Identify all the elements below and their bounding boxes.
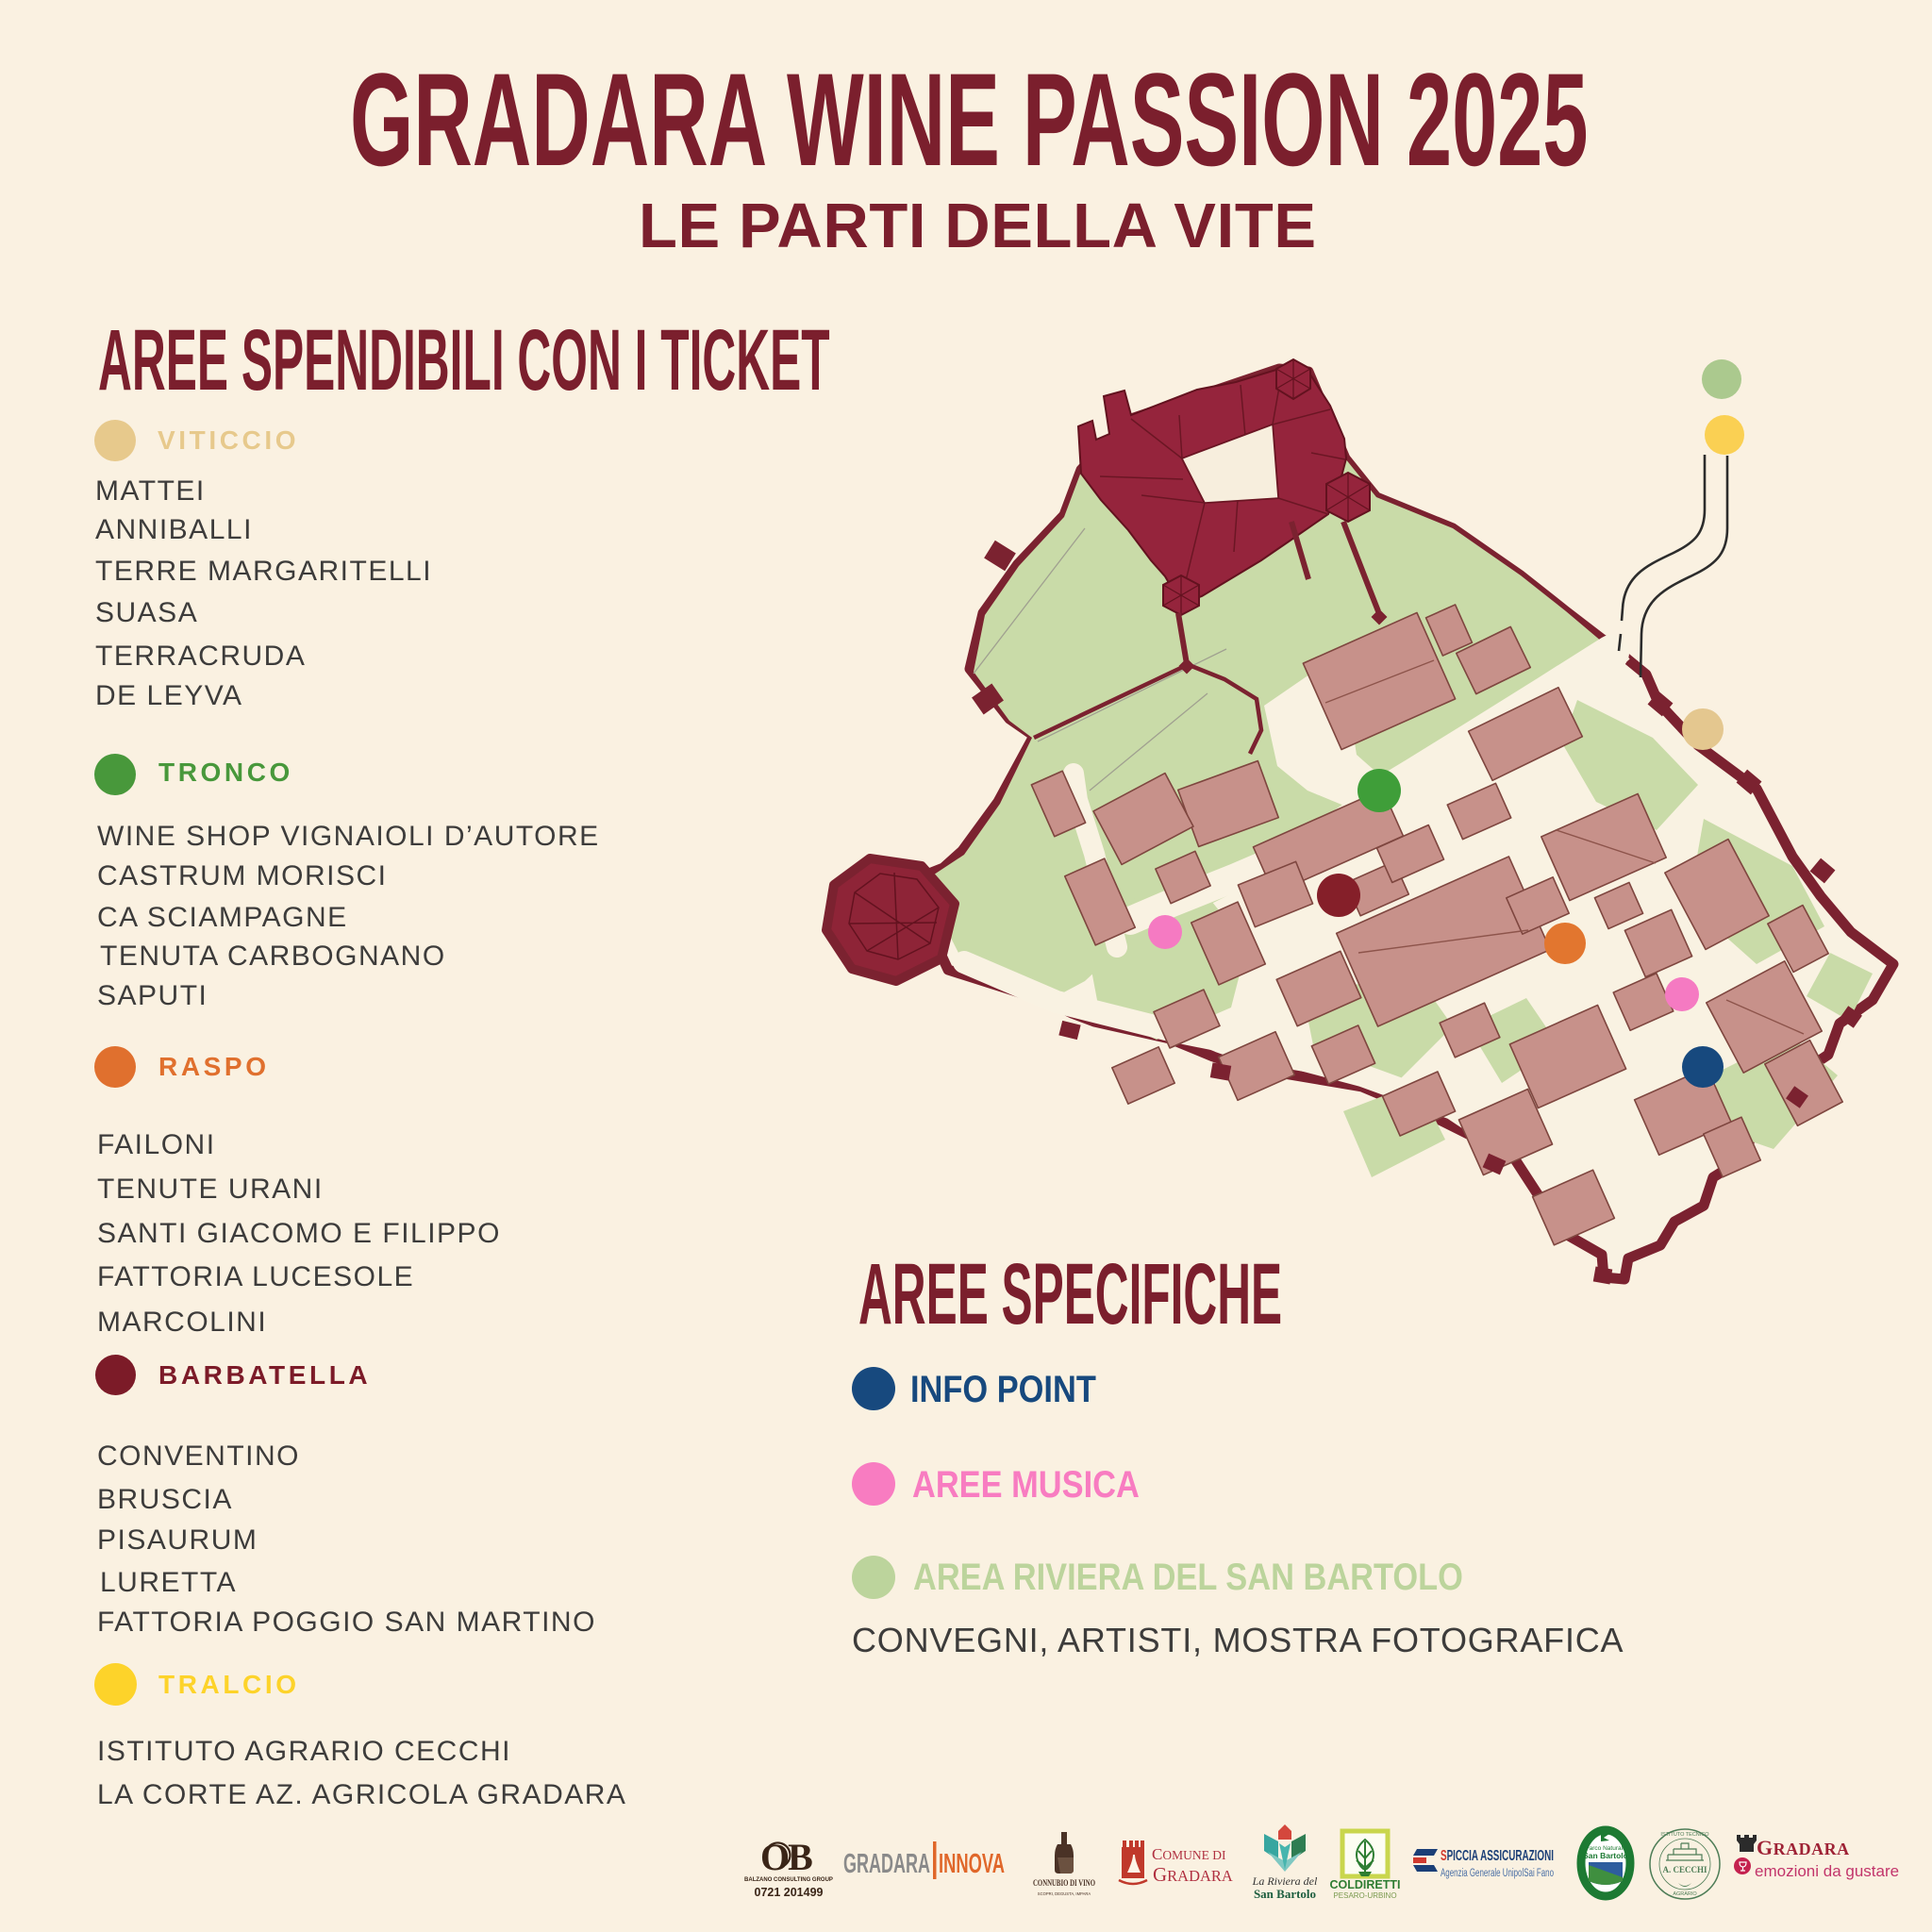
svg-text:OB: OB bbox=[760, 1836, 812, 1878]
svg-text:Agenzia Generale UnipolSai Fan: Agenzia Generale UnipolSai Fano bbox=[1441, 1868, 1554, 1879]
svg-text:GRADARA: GRADARA bbox=[1153, 1863, 1233, 1886]
svg-text:COLDIRETTI: COLDIRETTI bbox=[1330, 1878, 1401, 1891]
svg-text:A. CECCHI: A. CECCHI bbox=[1662, 1865, 1707, 1874]
svg-text:La Riviera del: La Riviera del bbox=[1252, 1874, 1318, 1888]
svg-text:ISTITUTO TECNICO: ISTITUTO TECNICO bbox=[1660, 1832, 1709, 1838]
svg-text:CONNUBIO DI VINO: CONNUBIO DI VINO bbox=[1033, 1878, 1095, 1888]
svg-text:San Bartolo: San Bartolo bbox=[1254, 1887, 1316, 1901]
svg-text:San Bartolo: San Bartolo bbox=[1583, 1851, 1628, 1860]
svg-text:GRADARA: GRADARA bbox=[1757, 1836, 1850, 1859]
svg-text:emozioni da gustare: emozioni da gustare bbox=[1755, 1862, 1899, 1880]
svg-text:SPICCIA ASSICURAZIONI: SPICCIA ASSICURAZIONI bbox=[1441, 1848, 1554, 1864]
svg-text:AGRARIO: AGRARIO bbox=[1673, 1891, 1697, 1897]
svg-text:0721 201499: 0721 201499 bbox=[755, 1886, 824, 1899]
svg-text:COMUNE DI: COMUNE DI bbox=[1152, 1845, 1226, 1863]
svg-text:SCOPRI, DEGUSTA, IMPARA: SCOPRI, DEGUSTA, IMPARA bbox=[1038, 1891, 1091, 1896]
svg-text:BALZANO CONSULTING GROUP: BALZANO CONSULTING GROUP bbox=[744, 1877, 833, 1883]
svg-text:INNOVA: INNOVA bbox=[939, 1849, 1005, 1879]
svg-text:PESARO-URBINO: PESARO-URBINO bbox=[1333, 1891, 1396, 1900]
svg-text:GRADARA: GRADARA bbox=[843, 1849, 930, 1879]
